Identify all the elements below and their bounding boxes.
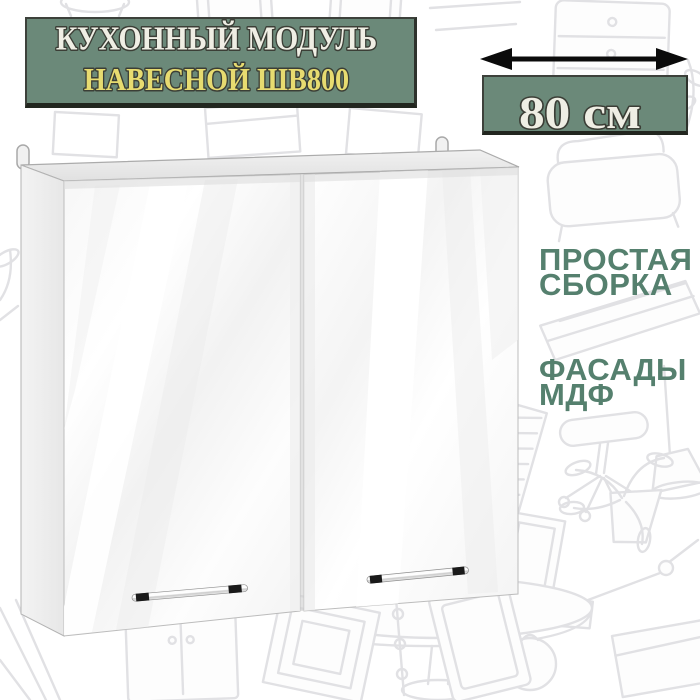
doodle-cup-icon: [61, 0, 129, 16]
width-label: 80 см: [519, 87, 641, 131]
title-plate: КУХОННЫЙ МОДУЛЬ НАВЕСНОЙ ШВ800: [25, 17, 417, 108]
product-card: КУХОННЫЙ МОДУЛЬ НАВЕСНОЙ ШВ800 80 см ПРО…: [0, 0, 700, 700]
doodle-plant-icon: [560, 451, 675, 553]
door-gap: [300, 175, 304, 612]
feature-line: СБОРКА: [539, 272, 692, 297]
title-line2: НАВЕСНОЙ ШВ800: [84, 62, 349, 97]
width-arrow-icon: [476, 42, 692, 76]
cabinet-right-door: [304, 167, 518, 611]
product-render: [0, 130, 560, 700]
width-plate-text: 80 см: [484, 77, 686, 131]
feature-mdf-fronts: ФАСАДЫ МДФ: [539, 357, 687, 407]
cabinet-side-panel: [21, 165, 64, 636]
doodle-shelf-icon: [430, 2, 520, 30]
title-line1: КУХОННЫЙ МОДУЛЬ: [56, 21, 377, 58]
doodle-sofa-icon: [544, 129, 682, 242]
width-plate: 80 см: [482, 75, 688, 135]
title-plate-text: КУХОННЫЙ МОДУЛЬ НАВЕСНОЙ ШВ800: [27, 19, 414, 103]
feature-easy-assembly: ПРОСТАЯ СБОРКА: [539, 247, 692, 297]
cabinet-left-door: [58, 174, 300, 636]
